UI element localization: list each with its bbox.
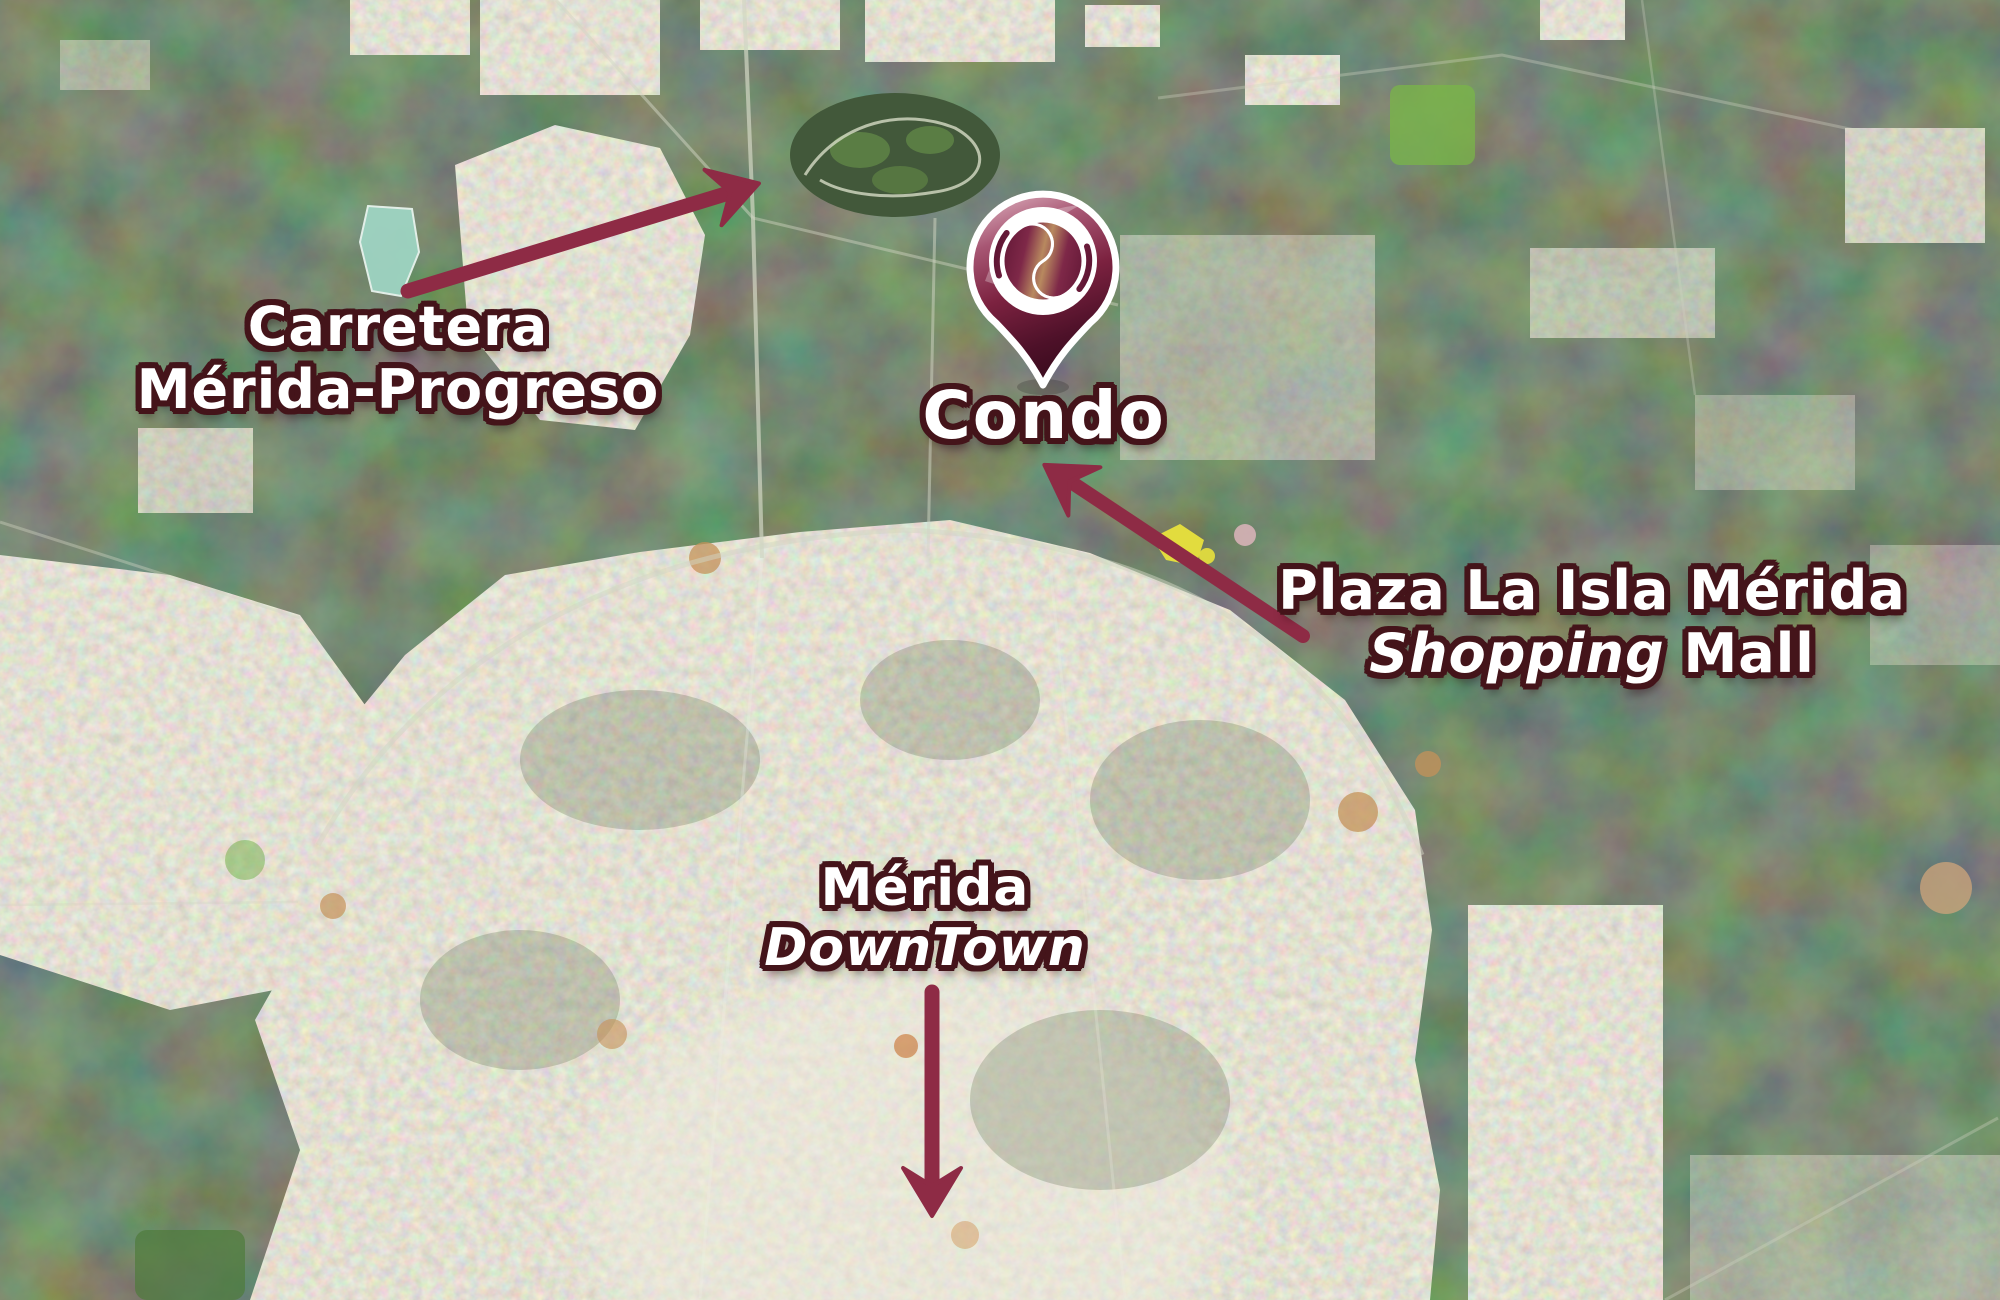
carretera-label: Carretera Mérida-Progreso [137, 296, 659, 421]
downtown-arrow [903, 992, 961, 1216]
carretera-line1: Carretera [137, 296, 659, 359]
plaza-arrow [1028, 441, 1303, 636]
condo-label: Condo [922, 378, 1165, 455]
downtown-line1: Mérida [764, 858, 1086, 918]
plaza-line2: ShoppingMall [1278, 623, 1905, 686]
plaza-line2-shopping: Shopping [1369, 622, 1664, 685]
location-map-graphic: Carretera Mérida-Progreso Condo Plaza La… [0, 0, 2000, 1300]
plaza-line2-mall: Mall [1684, 622, 1815, 685]
plaza-label: Plaza La Isla Mérida ShoppingMall [1278, 560, 1905, 685]
plaza-line1: Plaza La Isla Mérida [1278, 560, 1905, 623]
carretera-line2: Mérida-Progreso [137, 359, 659, 422]
condo-location-pin [970, 194, 1116, 395]
carretera-arrow [408, 156, 767, 291]
downtown-line2: DownTown [764, 918, 1086, 978]
downtown-label: Mérida DownTown [764, 858, 1086, 979]
condo-text: Condo [922, 378, 1165, 455]
